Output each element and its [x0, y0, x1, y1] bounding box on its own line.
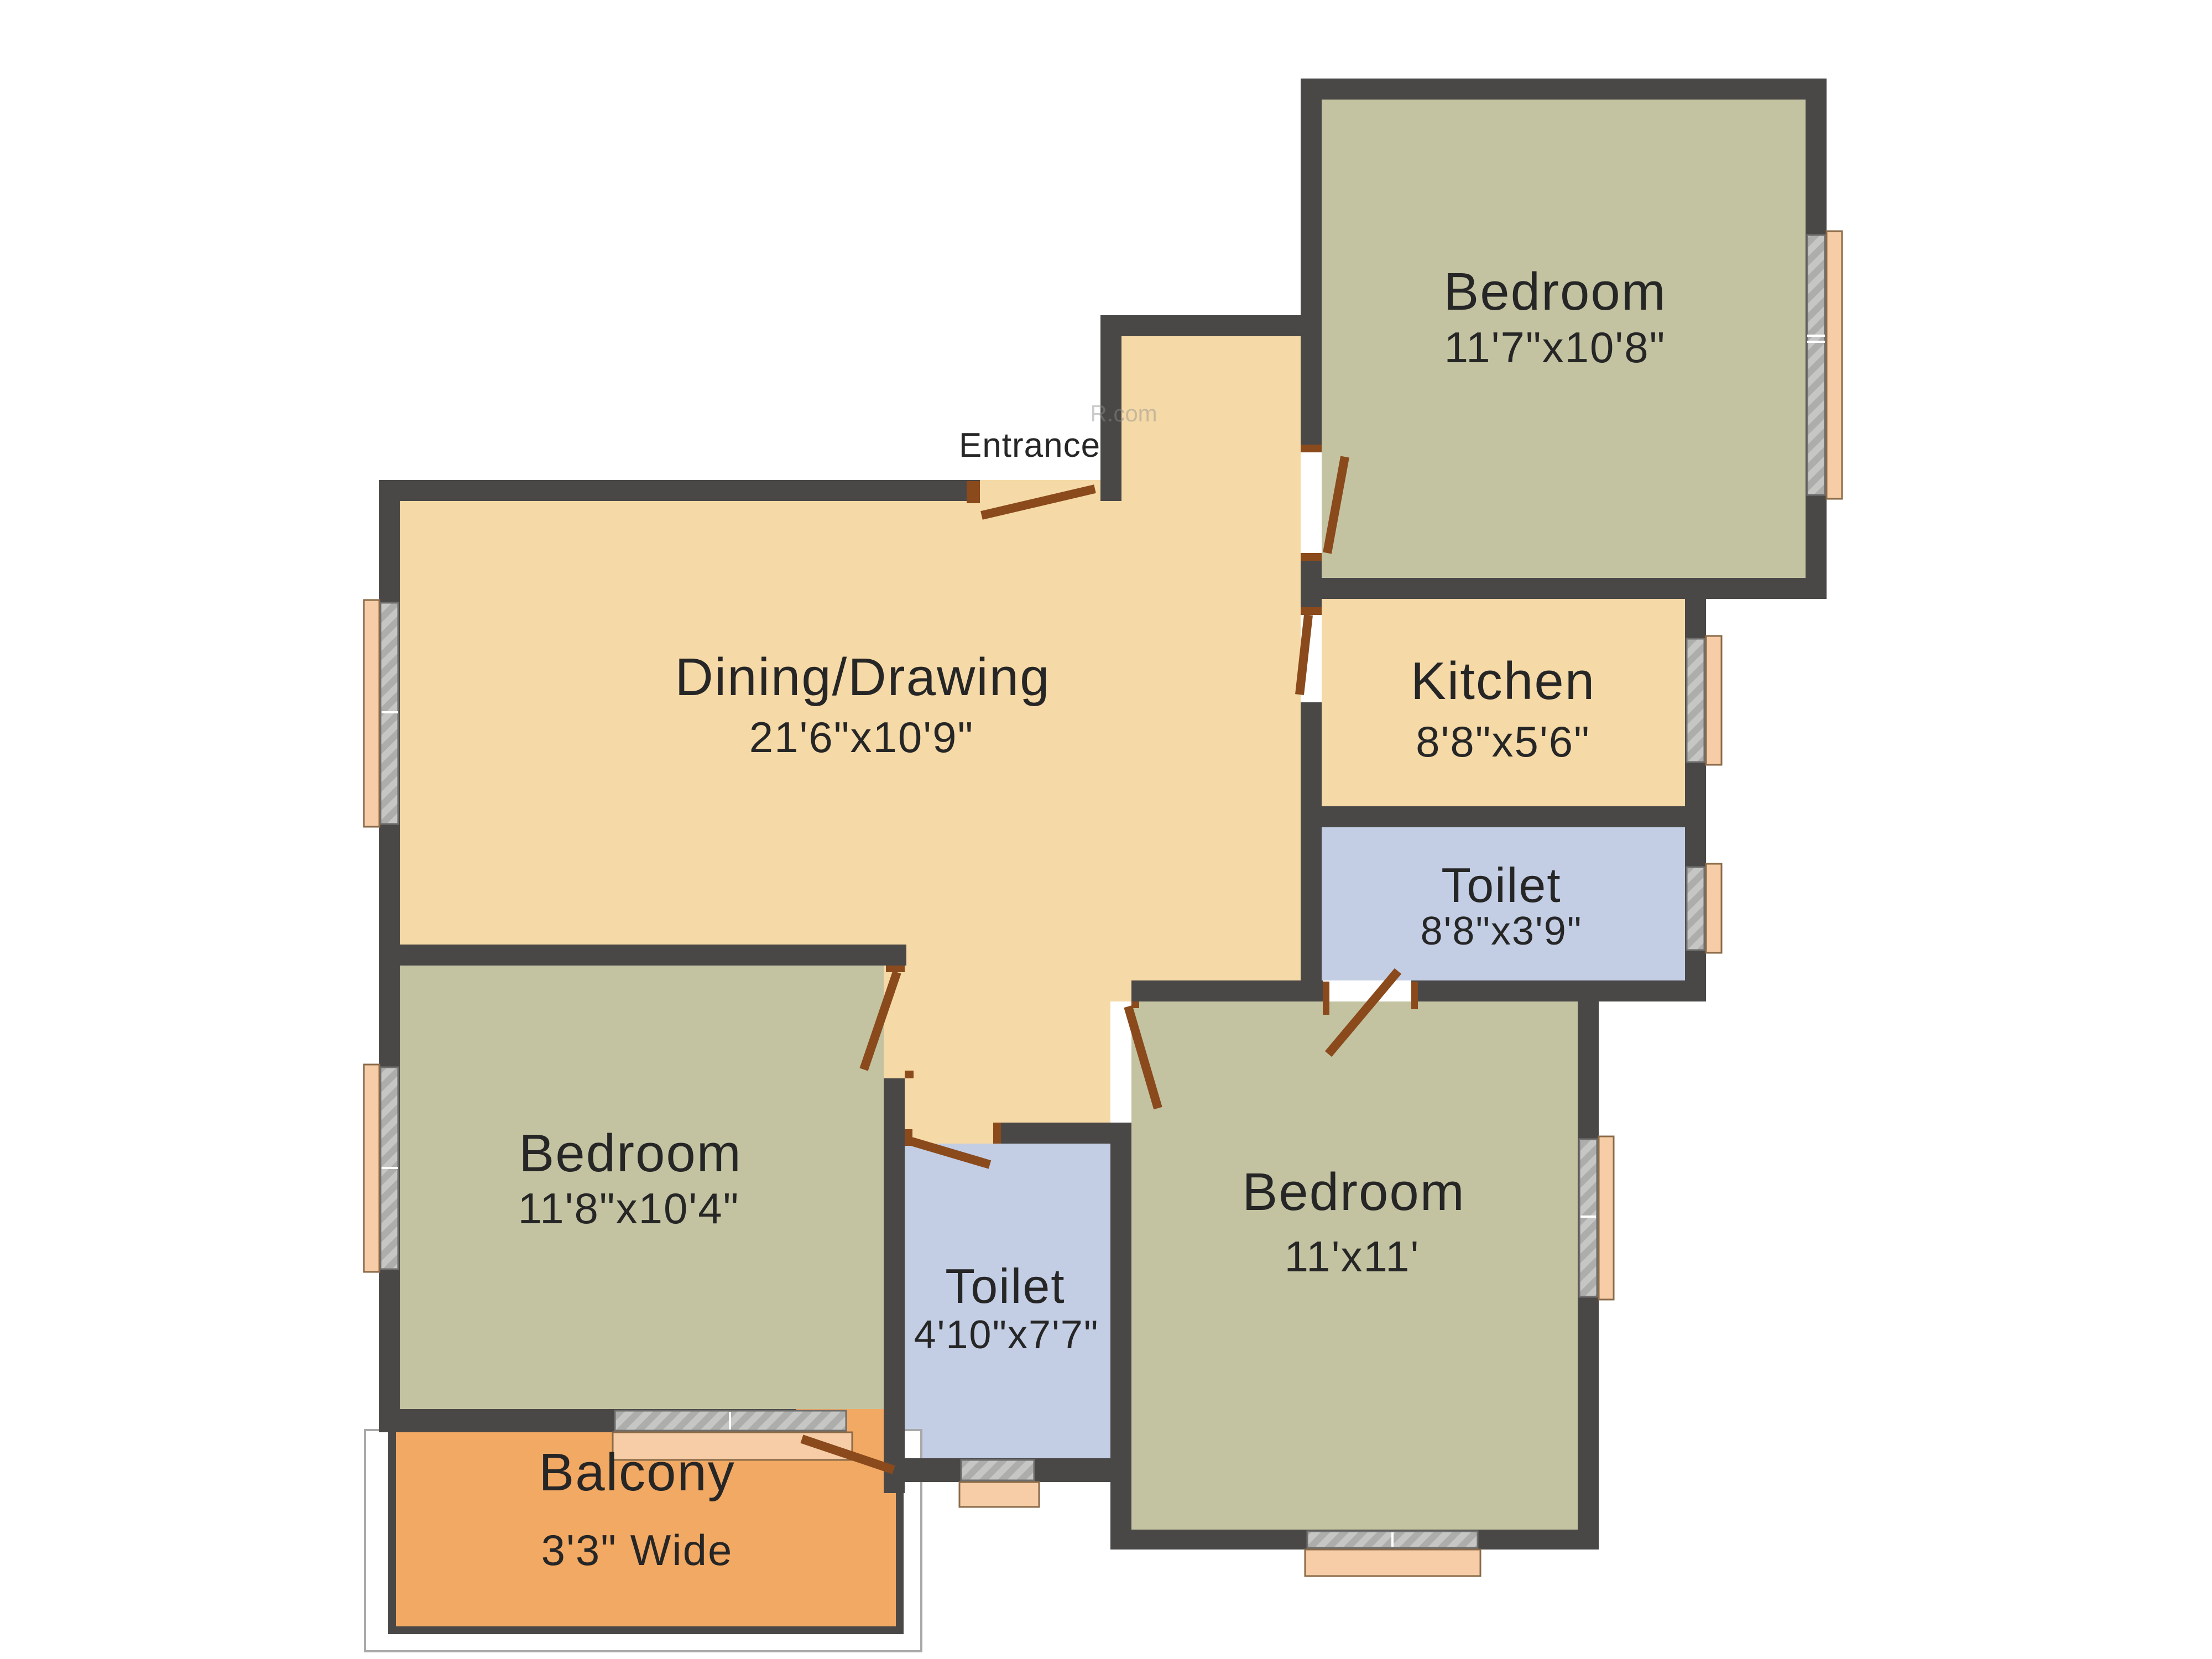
balcony-parapet — [388, 1432, 396, 1634]
window-sill — [364, 600, 379, 827]
window-sill — [959, 1482, 1039, 1507]
door-jamb — [1301, 607, 1322, 615]
room-dims-dining: 21'6"x10'9" — [749, 713, 974, 761]
door-jamb — [886, 966, 905, 972]
window-sill — [1305, 1550, 1480, 1576]
wall-segment — [1100, 315, 1322, 336]
balcony-parapet — [388, 1626, 904, 1634]
room-dims-bedroom-left: 11'8"x10'4" — [518, 1184, 740, 1233]
door-jamb — [1301, 445, 1322, 452]
wall-segment — [1110, 1123, 1131, 1550]
room-dims-toilet-lower: 4'10"x7'7" — [914, 1313, 1099, 1357]
wall-segment — [379, 945, 906, 966]
window-sill — [1599, 1136, 1614, 1300]
window-sill — [1706, 864, 1721, 953]
room-name-bedroom-left: Bedroom — [519, 1124, 742, 1183]
window-glass — [961, 1460, 1034, 1480]
window-glass — [1579, 1139, 1597, 1297]
hall-floor-left — [884, 945, 1110, 1123]
room-name-toilet-upper: Toilet — [1441, 858, 1561, 912]
door-jamb — [905, 1071, 914, 1078]
window-glass — [1807, 235, 1825, 495]
window-sill — [1706, 636, 1721, 765]
room-name-dining: Dining/Drawing — [675, 648, 1051, 707]
door-jamb — [967, 481, 980, 503]
kitchen-door-leaf — [1300, 615, 1308, 695]
room-name-bedroom-right: Bedroom — [1242, 1162, 1465, 1222]
balcony-parapet — [896, 1482, 904, 1634]
entrance-label: Entrance — [959, 426, 1100, 465]
room-name-bedroom-top: Bedroom — [1443, 262, 1667, 321]
window-glass — [1687, 639, 1704, 762]
door-jamb — [1301, 553, 1322, 561]
wall-segment — [1301, 578, 1827, 599]
door-jamb — [1411, 982, 1418, 1009]
floor-plan: Bedroom 11'7"x10'8" Kitchen 8'8"x5'6" To… — [0, 0, 2212, 1659]
window-sill — [364, 1065, 379, 1272]
door-jamb — [993, 1123, 1001, 1144]
room-dims-kitchen: 8'8"x5'6" — [1416, 717, 1590, 766]
wall-segment — [1301, 79, 1827, 100]
window-sill — [1827, 231, 1842, 499]
floor-plan-canvas: Bedroom 11'7"x10'8" Kitchen 8'8"x5'6" To… — [0, 0, 2212, 1659]
room-name-toilet-lower: Toilet — [945, 1259, 1065, 1313]
wall-segment — [1301, 79, 1322, 452]
wall-segment — [1301, 702, 1322, 980]
room-dims-toilet-upper: 8'8"x3'9" — [1421, 909, 1583, 953]
wall-segment — [1411, 980, 1706, 1001]
wall-segment — [884, 1078, 905, 1493]
wall-segment — [1131, 980, 1323, 1001]
room-dims-bedroom-right: 11'x11' — [1285, 1232, 1420, 1281]
window-glass — [1687, 867, 1704, 950]
room-dims-bedroom-top: 11'7"x10'8" — [1444, 323, 1666, 372]
room-dims-balcony: 3'3" Wide — [541, 1526, 733, 1574]
wall-segment — [379, 480, 980, 501]
room-name-kitchen: Kitchen — [1411, 651, 1595, 711]
watermark-text: R.com — [1090, 400, 1157, 426]
room-name-balcony: Balcony — [539, 1443, 735, 1502]
wall-segment — [1301, 806, 1706, 827]
door-jamb — [1323, 982, 1329, 1015]
